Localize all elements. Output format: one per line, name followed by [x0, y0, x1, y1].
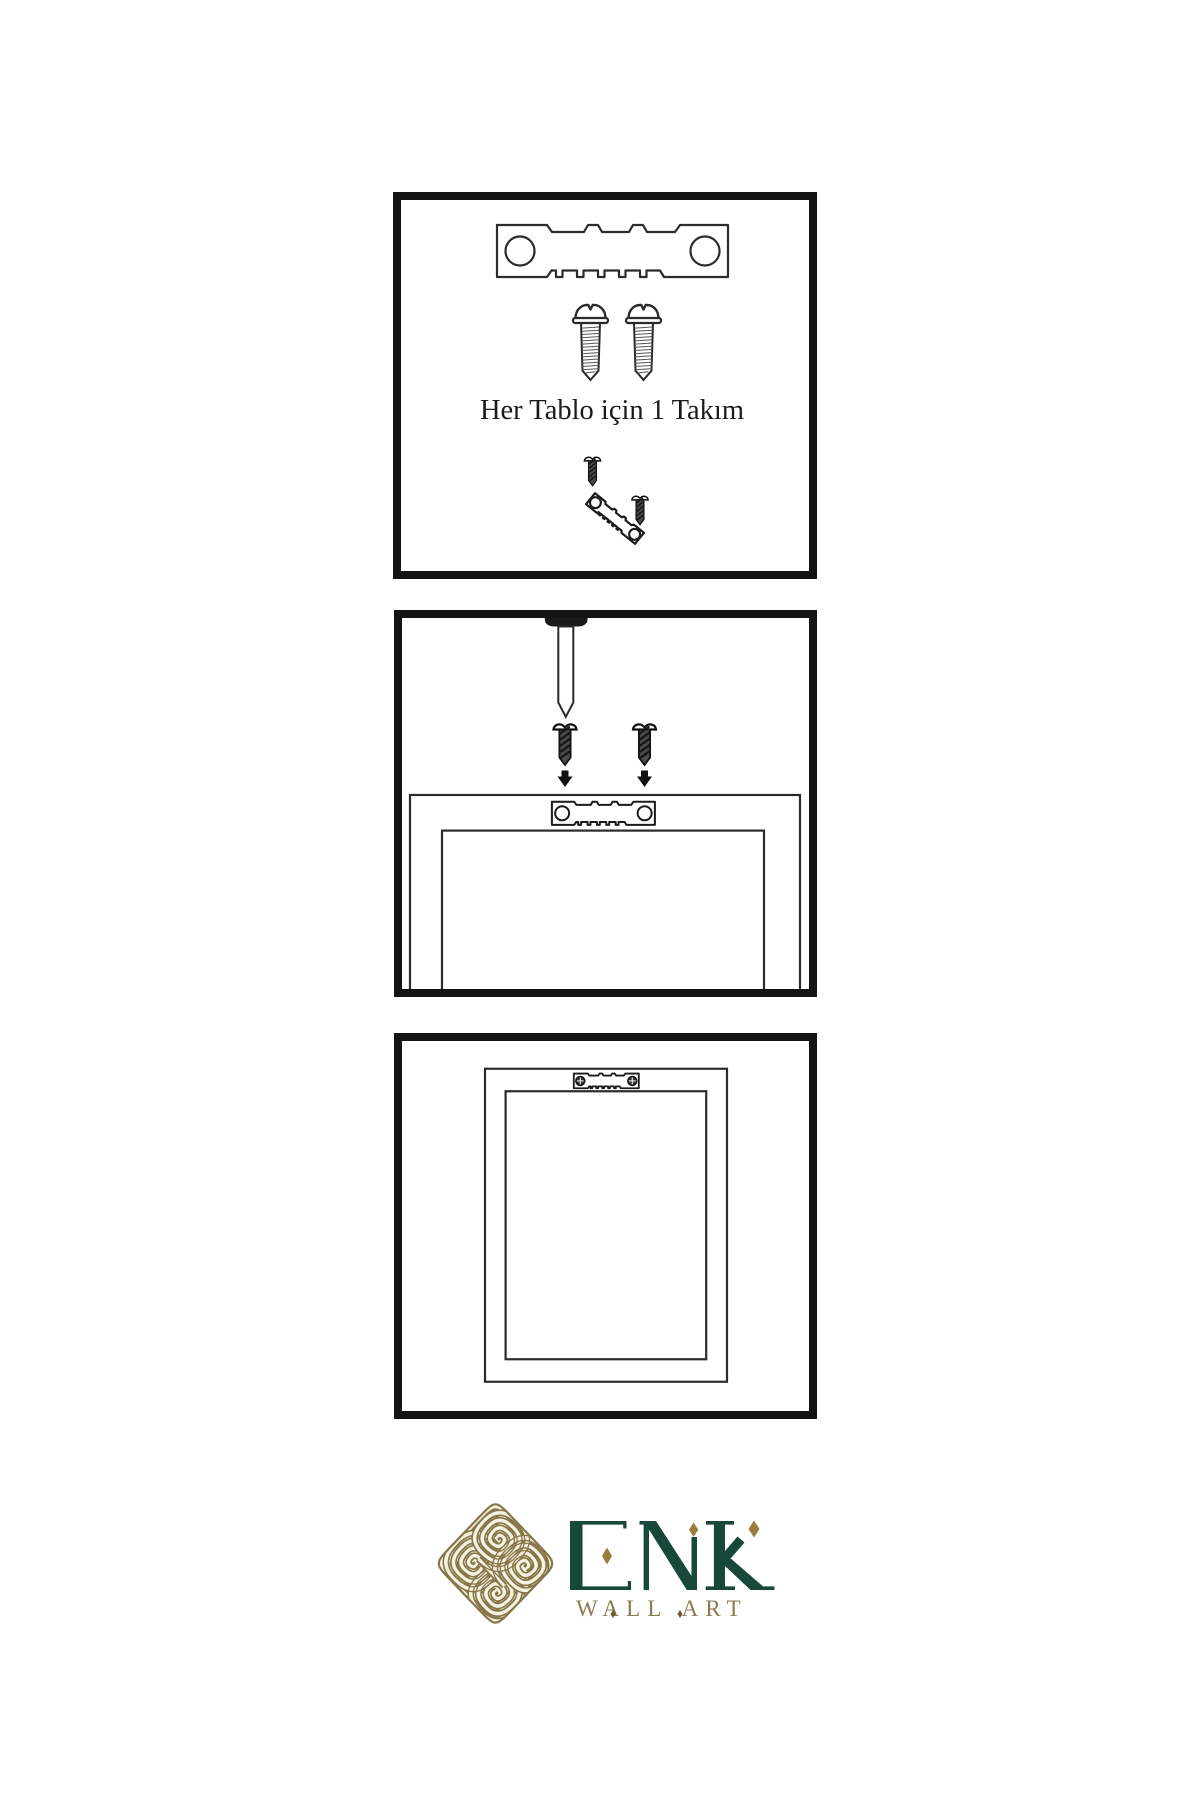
svg-text:Her Tablo için 1 Takım: Her Tablo için 1 Takım: [480, 395, 744, 426]
